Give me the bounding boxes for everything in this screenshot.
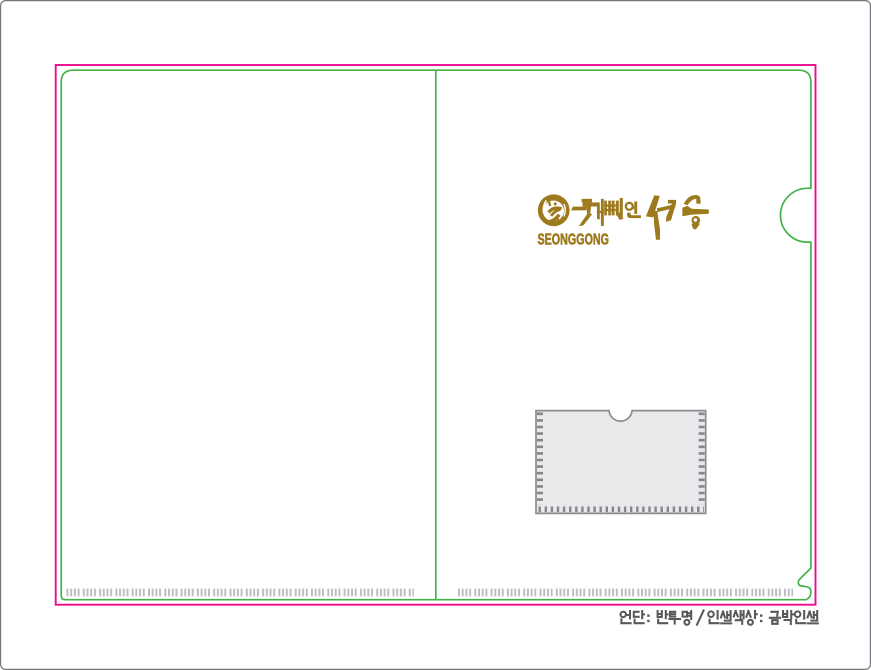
svg-text:SEONGGONG: SEONGGONG — [538, 231, 610, 248]
